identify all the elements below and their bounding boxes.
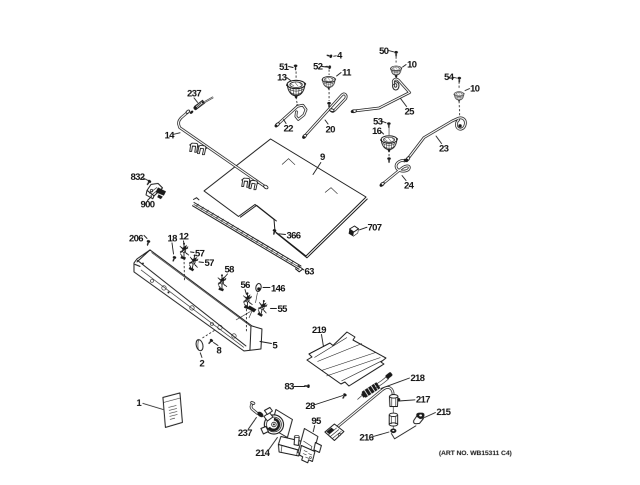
svg-text:63: 63 [304,266,314,277]
svg-text:16: 16 [372,126,382,137]
svg-text:14: 14 [165,130,176,141]
svg-text:58: 58 [224,264,234,275]
svg-text:2: 2 [199,358,204,369]
svg-text:83: 83 [284,381,294,392]
svg-text:25: 25 [405,107,416,118]
svg-text:216: 216 [359,433,373,444]
svg-text:51: 51 [279,62,290,73]
svg-text:219: 219 [312,325,326,336]
svg-text:237: 237 [238,428,252,439]
svg-text:218: 218 [410,373,424,384]
svg-text:52: 52 [313,61,323,72]
svg-text:23: 23 [439,144,449,155]
svg-text:10: 10 [470,84,480,95]
svg-text:900: 900 [141,199,155,210]
svg-text:50: 50 [379,46,389,57]
svg-text:57: 57 [195,248,205,259]
svg-text:20: 20 [326,125,336,136]
svg-text:57: 57 [204,258,214,269]
svg-text:55: 55 [277,304,288,315]
svg-text:(ART NO. WB15311 C4): (ART NO. WB15311 C4) [439,450,512,457]
svg-text:95: 95 [311,416,322,427]
svg-text:214: 214 [255,448,270,459]
svg-text:9: 9 [320,152,325,163]
svg-text:10: 10 [407,60,417,71]
svg-text:215: 215 [436,407,451,418]
svg-text:206: 206 [129,233,143,244]
svg-text:707: 707 [368,223,382,234]
svg-text:22: 22 [284,123,294,134]
svg-text:11: 11 [342,68,352,79]
svg-text:146: 146 [271,283,285,294]
svg-text:366: 366 [286,230,300,241]
svg-text:28: 28 [305,401,315,412]
svg-text:13: 13 [277,72,287,83]
svg-text:8: 8 [216,345,221,356]
svg-text:217: 217 [416,395,430,406]
svg-text:24: 24 [404,181,415,192]
